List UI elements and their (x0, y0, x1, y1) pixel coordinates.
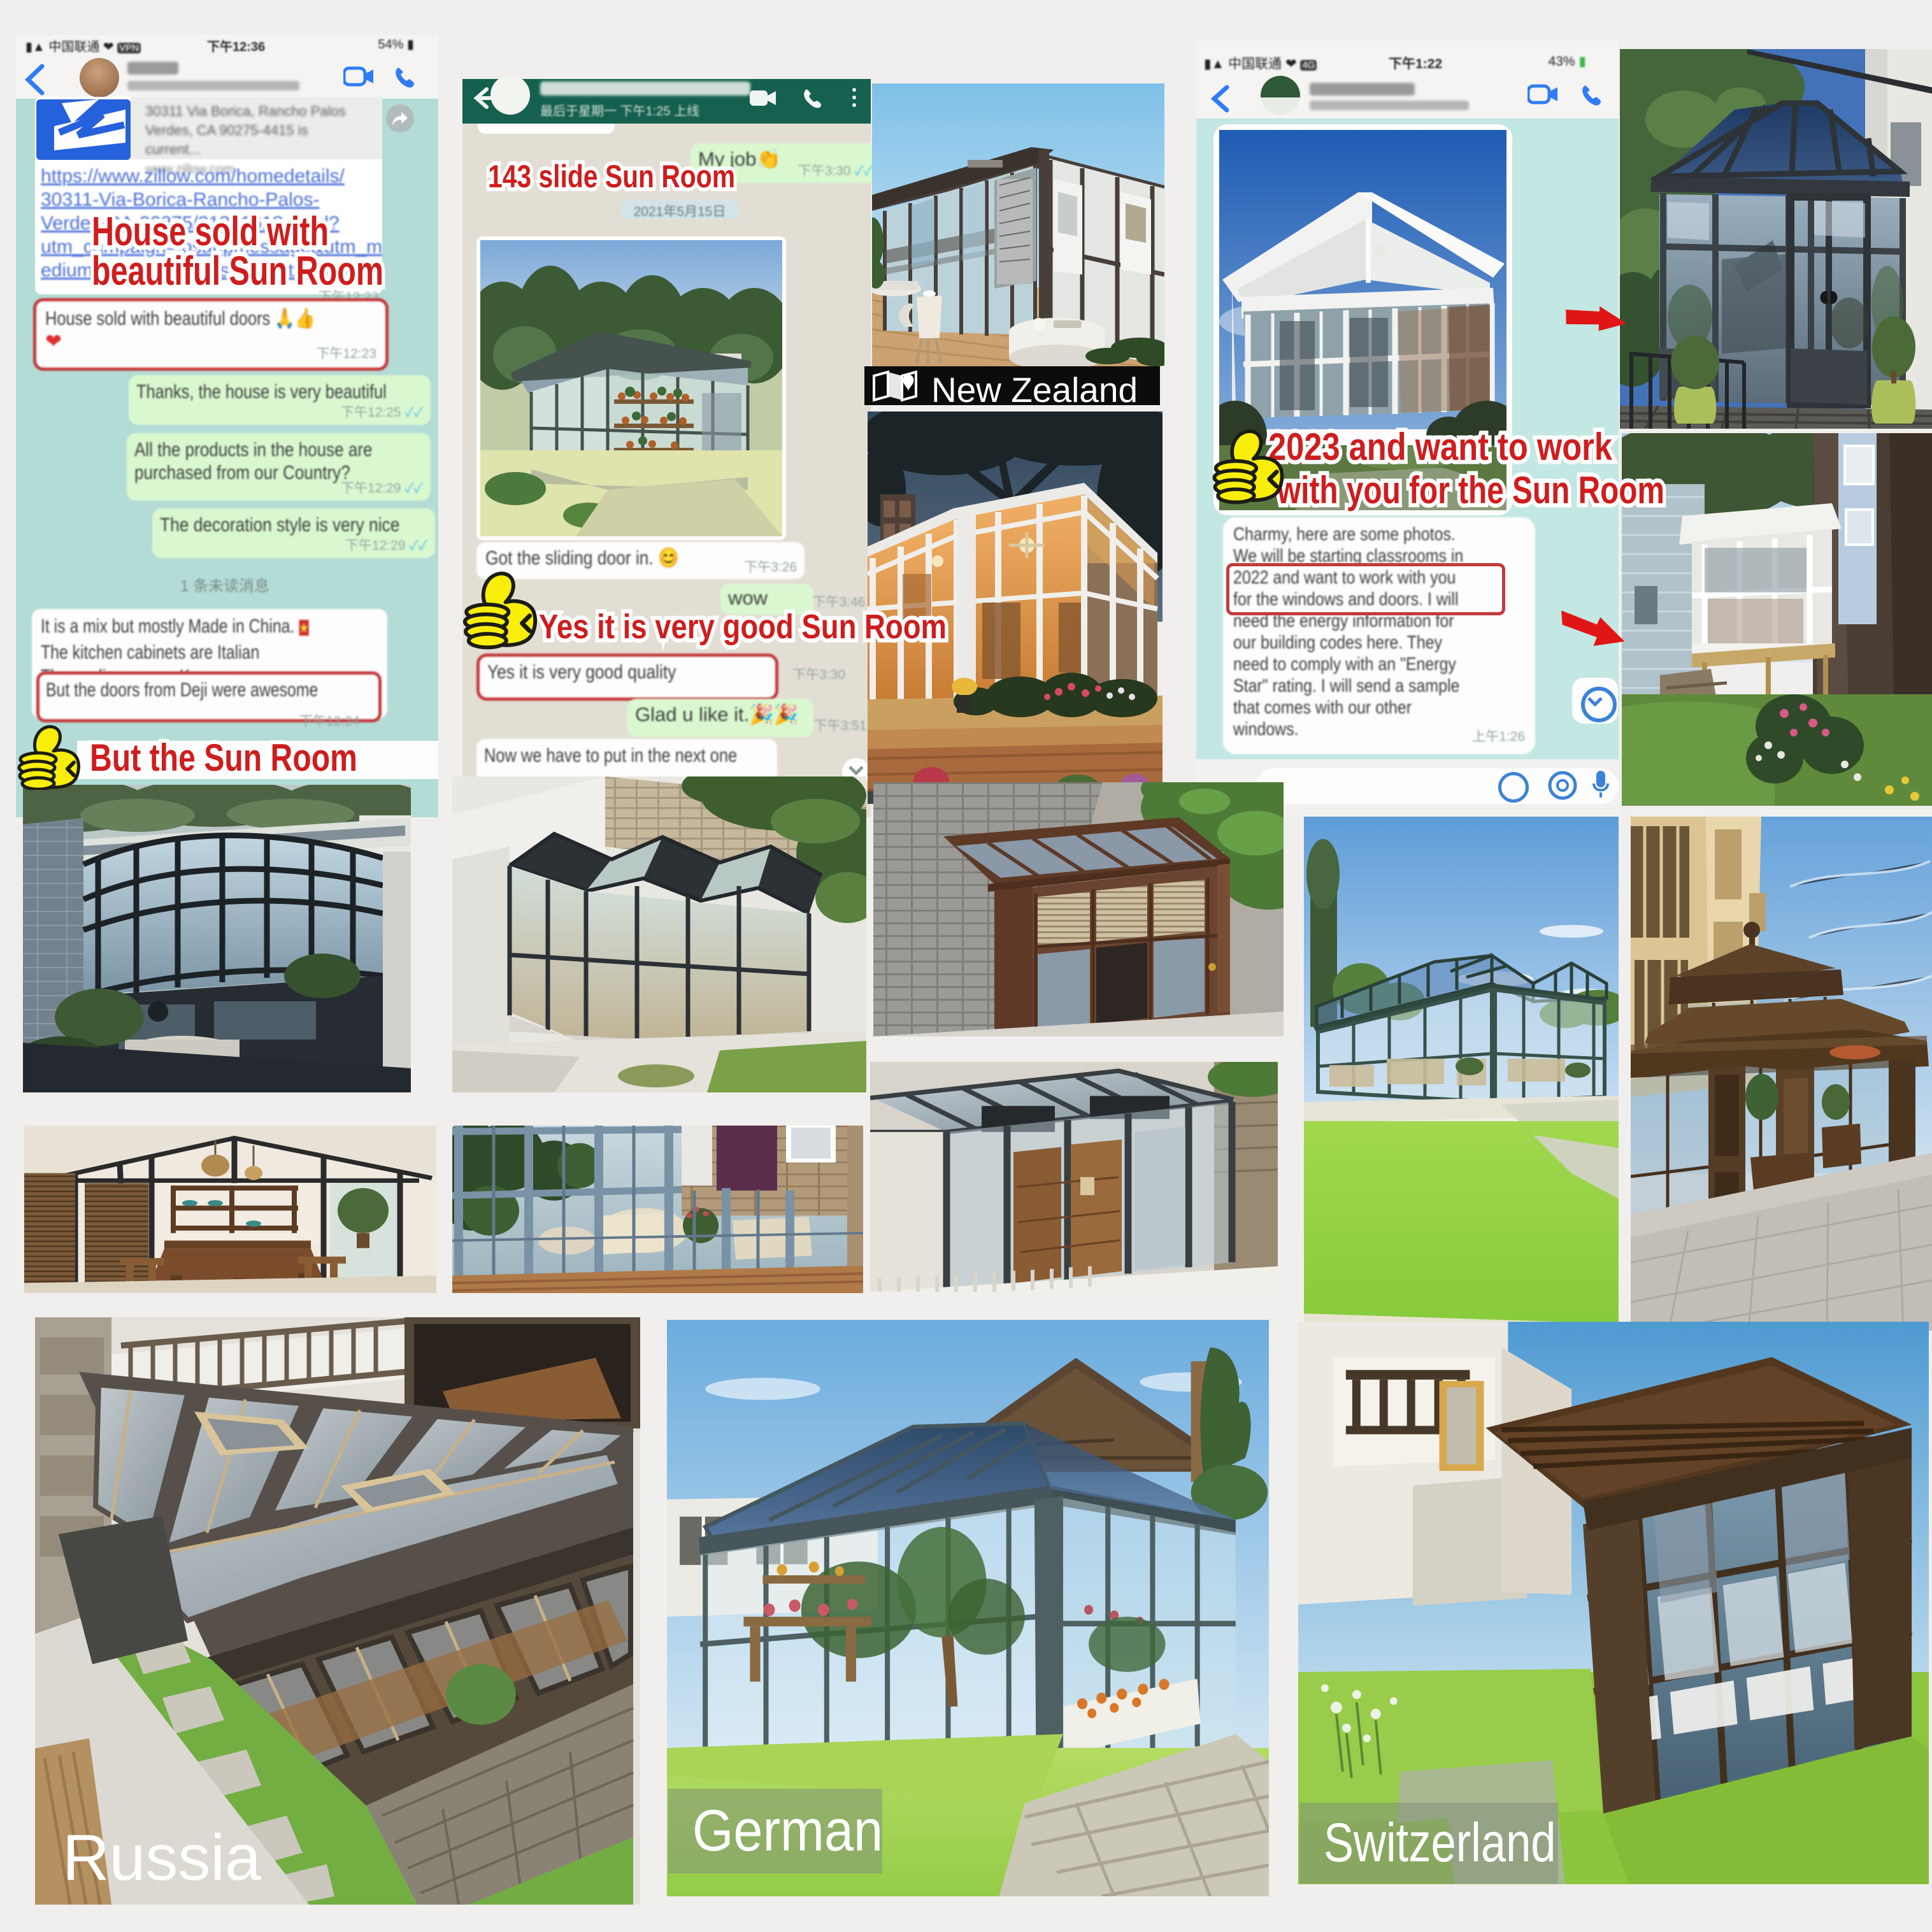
svg-text:with you for the Sun Room: with you for the Sun Room (1277, 469, 1664, 512)
svg-text:143 slide Sun Room: 143 slide Sun Room (488, 159, 735, 194)
svg-text:2023 and want to work: 2023 and want to work (1268, 426, 1613, 468)
svg-text:But the Sun Room: But the Sun Room (90, 738, 357, 779)
svg-text:Yes it is very good Sun Room: Yes it is very good Sun Room (539, 608, 947, 646)
svg-text:beautiful Sun Room: beautiful Sun Room (92, 248, 383, 294)
